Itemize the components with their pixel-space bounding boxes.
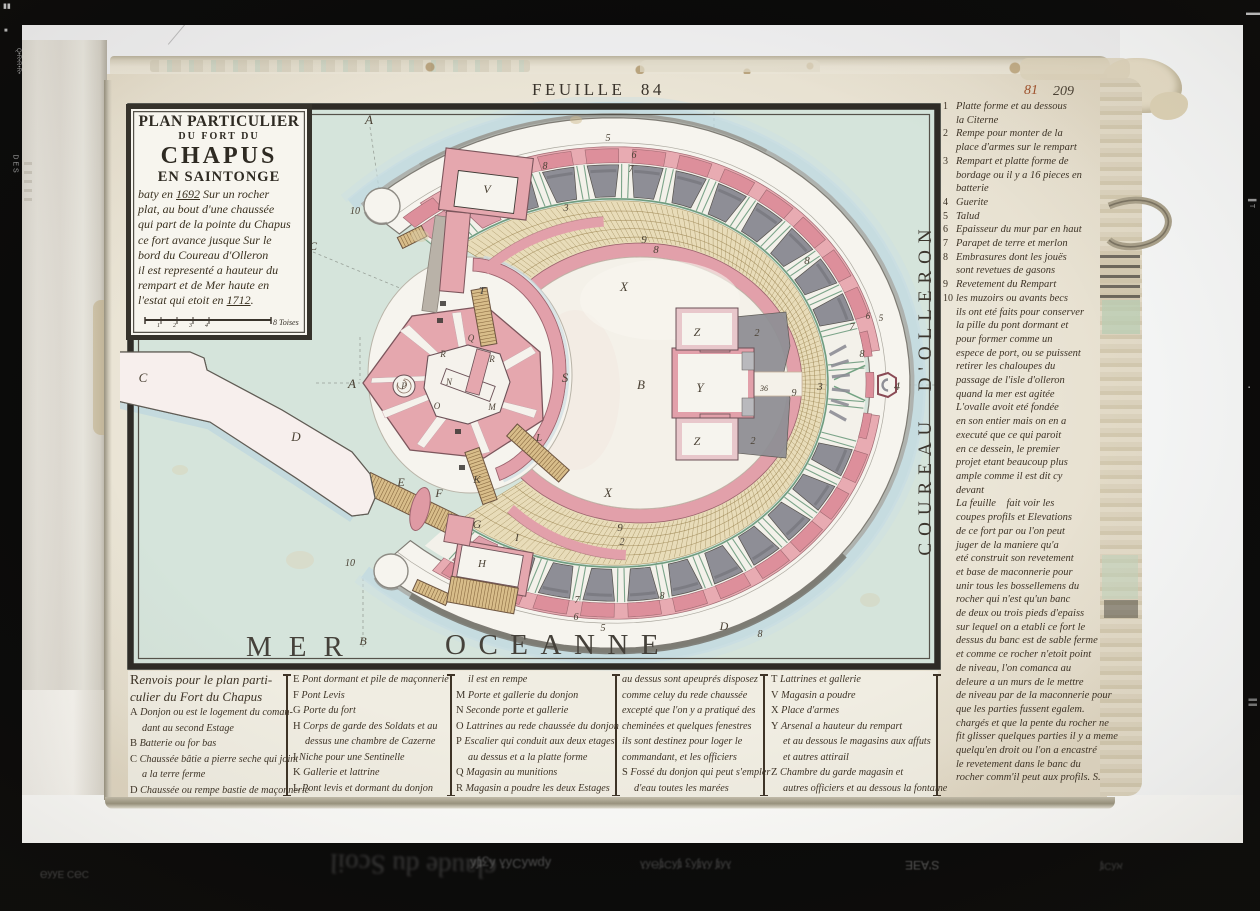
svg-text:T: T <box>479 285 486 297</box>
svg-text:8: 8 <box>804 255 810 267</box>
svg-text:8: 8 <box>660 591 665 602</box>
svg-text:Q: Q <box>468 333 475 343</box>
svg-text:8: 8 <box>543 161 548 172</box>
svg-text:L: L <box>535 432 542 444</box>
svg-text:3: 3 <box>188 323 192 327</box>
svg-text:D: D <box>719 619 729 633</box>
svg-text:Z: Z <box>694 434 701 448</box>
svg-text:9: 9 <box>792 388 797 399</box>
svg-text:O: O <box>434 401 441 411</box>
svg-text:4: 4 <box>894 379 900 393</box>
svg-text:6: 6 <box>632 150 637 161</box>
svg-text:10: 10 <box>345 558 355 569</box>
svg-text:8: 8 <box>653 244 659 256</box>
svg-text:8: 8 <box>860 349 865 360</box>
svg-text:6: 6 <box>866 311 871 321</box>
svg-text:3: 3 <box>816 381 823 393</box>
svg-text:S: S <box>562 370 569 385</box>
svg-text:A: A <box>364 112 373 127</box>
svg-text:C: C <box>139 370 148 385</box>
svg-text:B: B <box>637 377 645 392</box>
svg-text:R: R <box>439 349 446 359</box>
svg-text:G: G <box>473 517 482 531</box>
svg-text:N: N <box>445 377 453 387</box>
svg-text:H: H <box>477 558 487 570</box>
svg-text:36: 36 <box>759 384 768 393</box>
svg-text:2: 2 <box>620 537 625 548</box>
svg-text:R: R <box>488 354 495 364</box>
svg-text:X: X <box>619 279 629 294</box>
svg-text:2: 2 <box>755 328 760 339</box>
svg-text:M: M <box>487 402 496 412</box>
svg-text:3: 3 <box>563 203 569 214</box>
svg-text:A: A <box>347 376 356 391</box>
svg-text:2: 2 <box>751 436 756 447</box>
svg-text:E: E <box>396 475 405 489</box>
svg-text:2: 2 <box>173 323 176 327</box>
svg-text:10: 10 <box>350 206 360 217</box>
svg-text:9: 9 <box>617 522 623 534</box>
svg-text:P: P <box>400 381 407 391</box>
svg-text:F: F <box>434 486 443 500</box>
svg-text:Z: Z <box>694 325 701 339</box>
svg-text:B: B <box>359 634 367 648</box>
svg-text:9: 9 <box>641 234 647 246</box>
svg-text:8: 8 <box>758 629 763 640</box>
svg-text:D: D <box>290 429 301 444</box>
svg-text:X: X <box>603 485 613 500</box>
svg-text:K: K <box>472 474 481 486</box>
svg-text:5: 5 <box>606 133 611 144</box>
svg-text:4: 4 <box>205 322 208 327</box>
svg-text:8 Toises: 8 Toises <box>273 318 299 327</box>
svg-text:6: 6 <box>574 612 579 623</box>
svg-text:5: 5 <box>879 313 884 323</box>
svg-text:1: 1 <box>157 323 160 327</box>
